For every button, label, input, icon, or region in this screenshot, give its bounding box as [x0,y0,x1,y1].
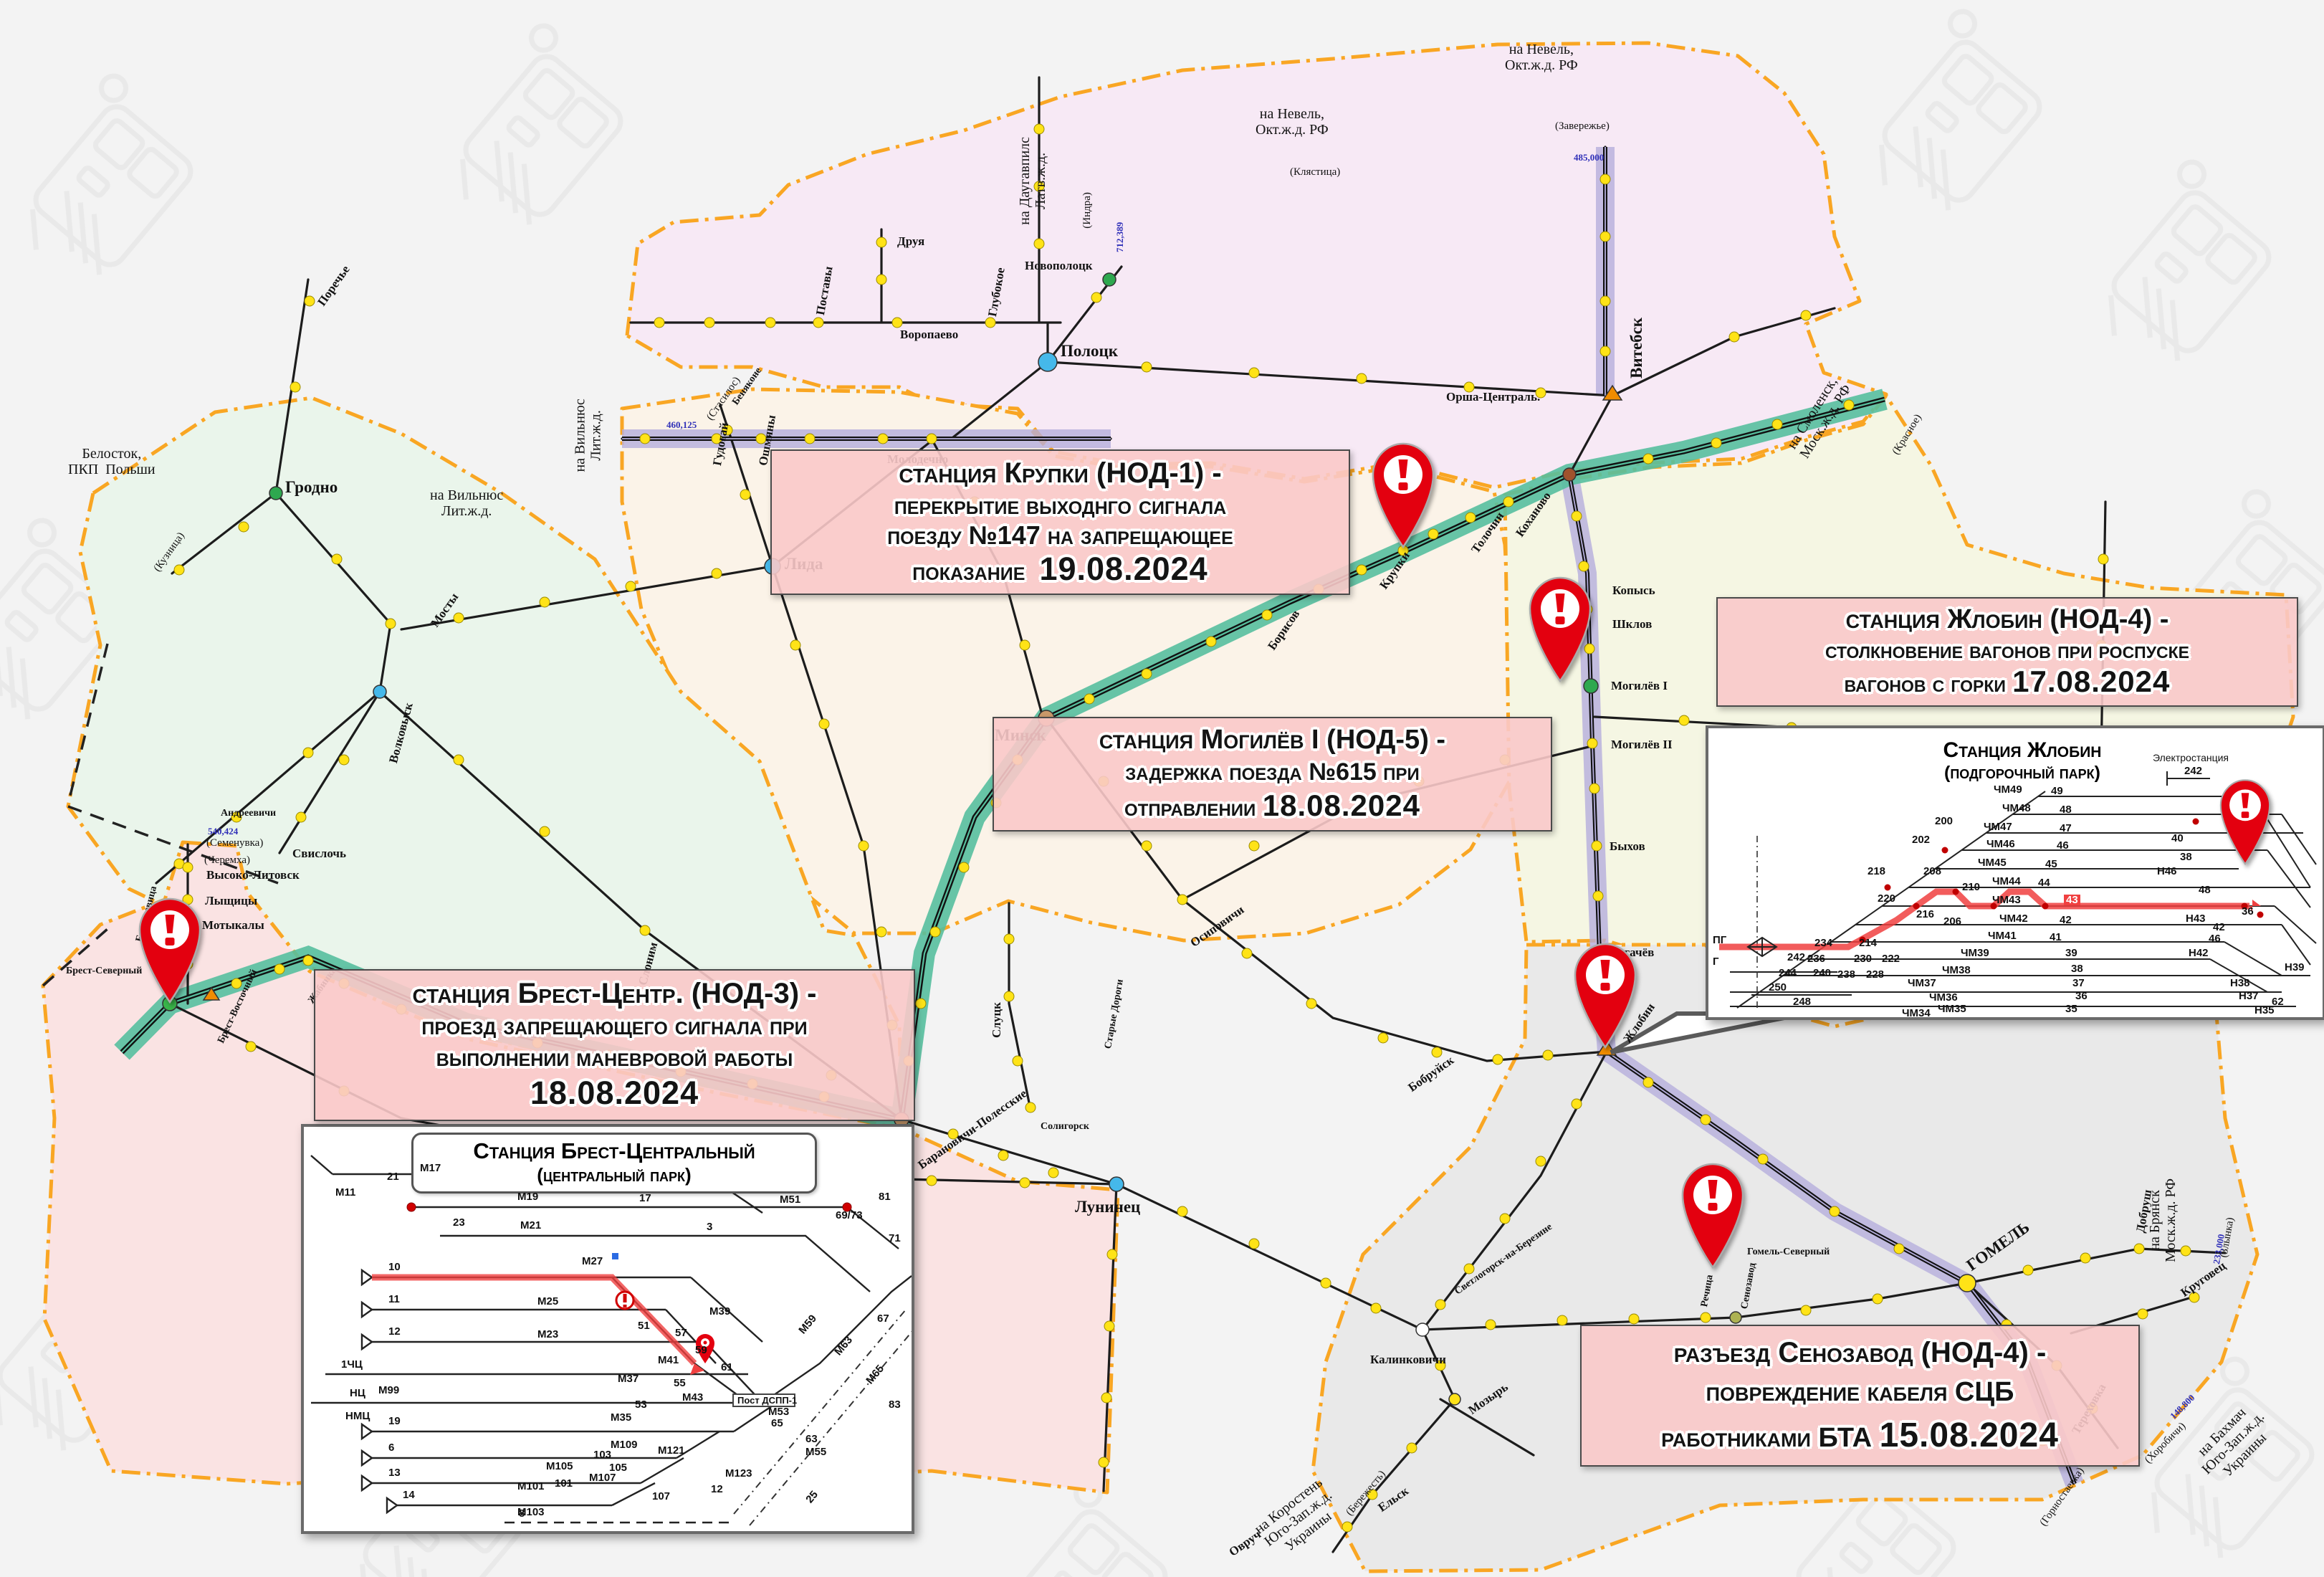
edge-label: на Невель, Окт.ж.д. РФ [1256,106,1329,138]
inset-brest-markers [407,1203,851,1363]
callout-date: 17.08.2024 [2012,664,2170,698]
station-label: Мотыкалы [202,919,264,931]
station-label: Лыщицы [205,895,257,907]
callout-date: 19.08.2024 [1039,551,1208,587]
callout-senozavod: разъезд Сенозавод (НОД-4) - повреждение … [1580,1325,2140,1467]
station-label: Могилёв I [1611,680,1668,692]
border-km: 540,424 [208,826,238,837]
edge-label: на Даугавпилс Латв.ж.д. [1017,137,1049,225]
station-label: Солигорск [1041,1122,1089,1132]
edge-label: (Семенувка) [206,837,263,849]
incident-pin-senozavod [1678,1161,1747,1269]
edge-label: на Вильнюс Лит.ж.д. [430,487,503,520]
incident-pin-brest [135,896,204,1004]
station-label: Полоцк [1061,343,1118,359]
station-label: Калинковичи [1370,1353,1446,1366]
callout-title: станция Брест-Центр. (НОД-3) - [413,978,817,1009]
station-label: Друя [897,235,924,247]
station-label: Копысь [1612,584,1655,596]
inset-zhlobin-hump-yard: Станция Жлобин (подгорочный парк) Электр… [1706,725,2324,1020]
callout-date: 15.08.2024 [1880,1416,2059,1454]
railway-network-map: на Невель, Окт.ж.д. РФ (Клястица) на Нев… [0,0,2324,1577]
callout-date: 18.08.2024 [1263,788,1420,822]
station-label: Высоко-Литовск [206,869,300,881]
station-label: Брест-Северный [66,966,142,976]
edge-label: Белосток, ПКП Польши [68,446,156,478]
incident-pin-krupki [1369,441,1438,548]
edge-label: (Черемха) [204,854,250,867]
callout-krupki: станция Крупки (НОД-1) - перекрытие выхо… [770,449,1350,595]
border-km: 460,125 [666,419,697,431]
inset-brest-title-box: Станция Брест-Центральный (центральный п… [411,1133,817,1194]
station-label: Шклов [1612,618,1652,630]
station-label: Лунинец [1075,1199,1140,1215]
callout-brest: станция Брест-Центр. (НОД-3) - проезд за… [314,969,915,1121]
callout-zhlobin: станция Жлобин (НОД-4) - столкновение ва… [1716,597,2298,707]
callout-title: станция Могилёв I (НОД-5) - [1099,726,1445,755]
callout-mogilev: станция Могилёв I (НОД-5) - задержка пое… [993,717,1552,832]
incident-pin-zhlobin-inset [2217,778,2273,865]
border-km: 712,389 [1114,222,1126,252]
station-label: Витебск [1628,318,1645,378]
border-km: 485,000 [1574,152,1604,163]
station-label: Новополоцк [1025,259,1093,272]
edge-label: на Вильнюс Лит.ж.д. [573,399,605,472]
station-label: Быхов [1610,840,1645,852]
callout-title: разъезд Сенозавод (НОД-4) - [1674,1338,2047,1368]
incident-pin-zhlobin-map [1571,941,1640,1049]
edge-label: (Клястица) [1290,166,1340,178]
callout-title: станция Жлобин (НОД-4) - [1846,606,2169,634]
station-label: Гомель-Северный [1747,1247,1830,1257]
station-label: Слуцк [990,1002,1003,1038]
incident-pin-mogilev [1526,575,1594,682]
station-label: Могилёв II [1611,738,1673,751]
station-label: Андреевичи [221,809,276,819]
station-label: Гродно [285,479,338,495]
station-label: Воропаево [900,328,958,340]
inset-brest-central: Станция Брест-Центральный (центральный п… [301,1124,914,1534]
station-label: Свислочь [292,847,346,859]
callout-date: 18.08.2024 [530,1075,699,1112]
station-label: Орша-Централь. [1446,391,1540,403]
edge-label: (Завережье) [1555,120,1610,133]
callout-title: станция Крупки (НОД-1) - [899,458,1221,488]
edge-label: на Невель, Окт.ж.д. РФ [1505,42,1578,74]
edge-label: (Индра) [1081,192,1094,229]
